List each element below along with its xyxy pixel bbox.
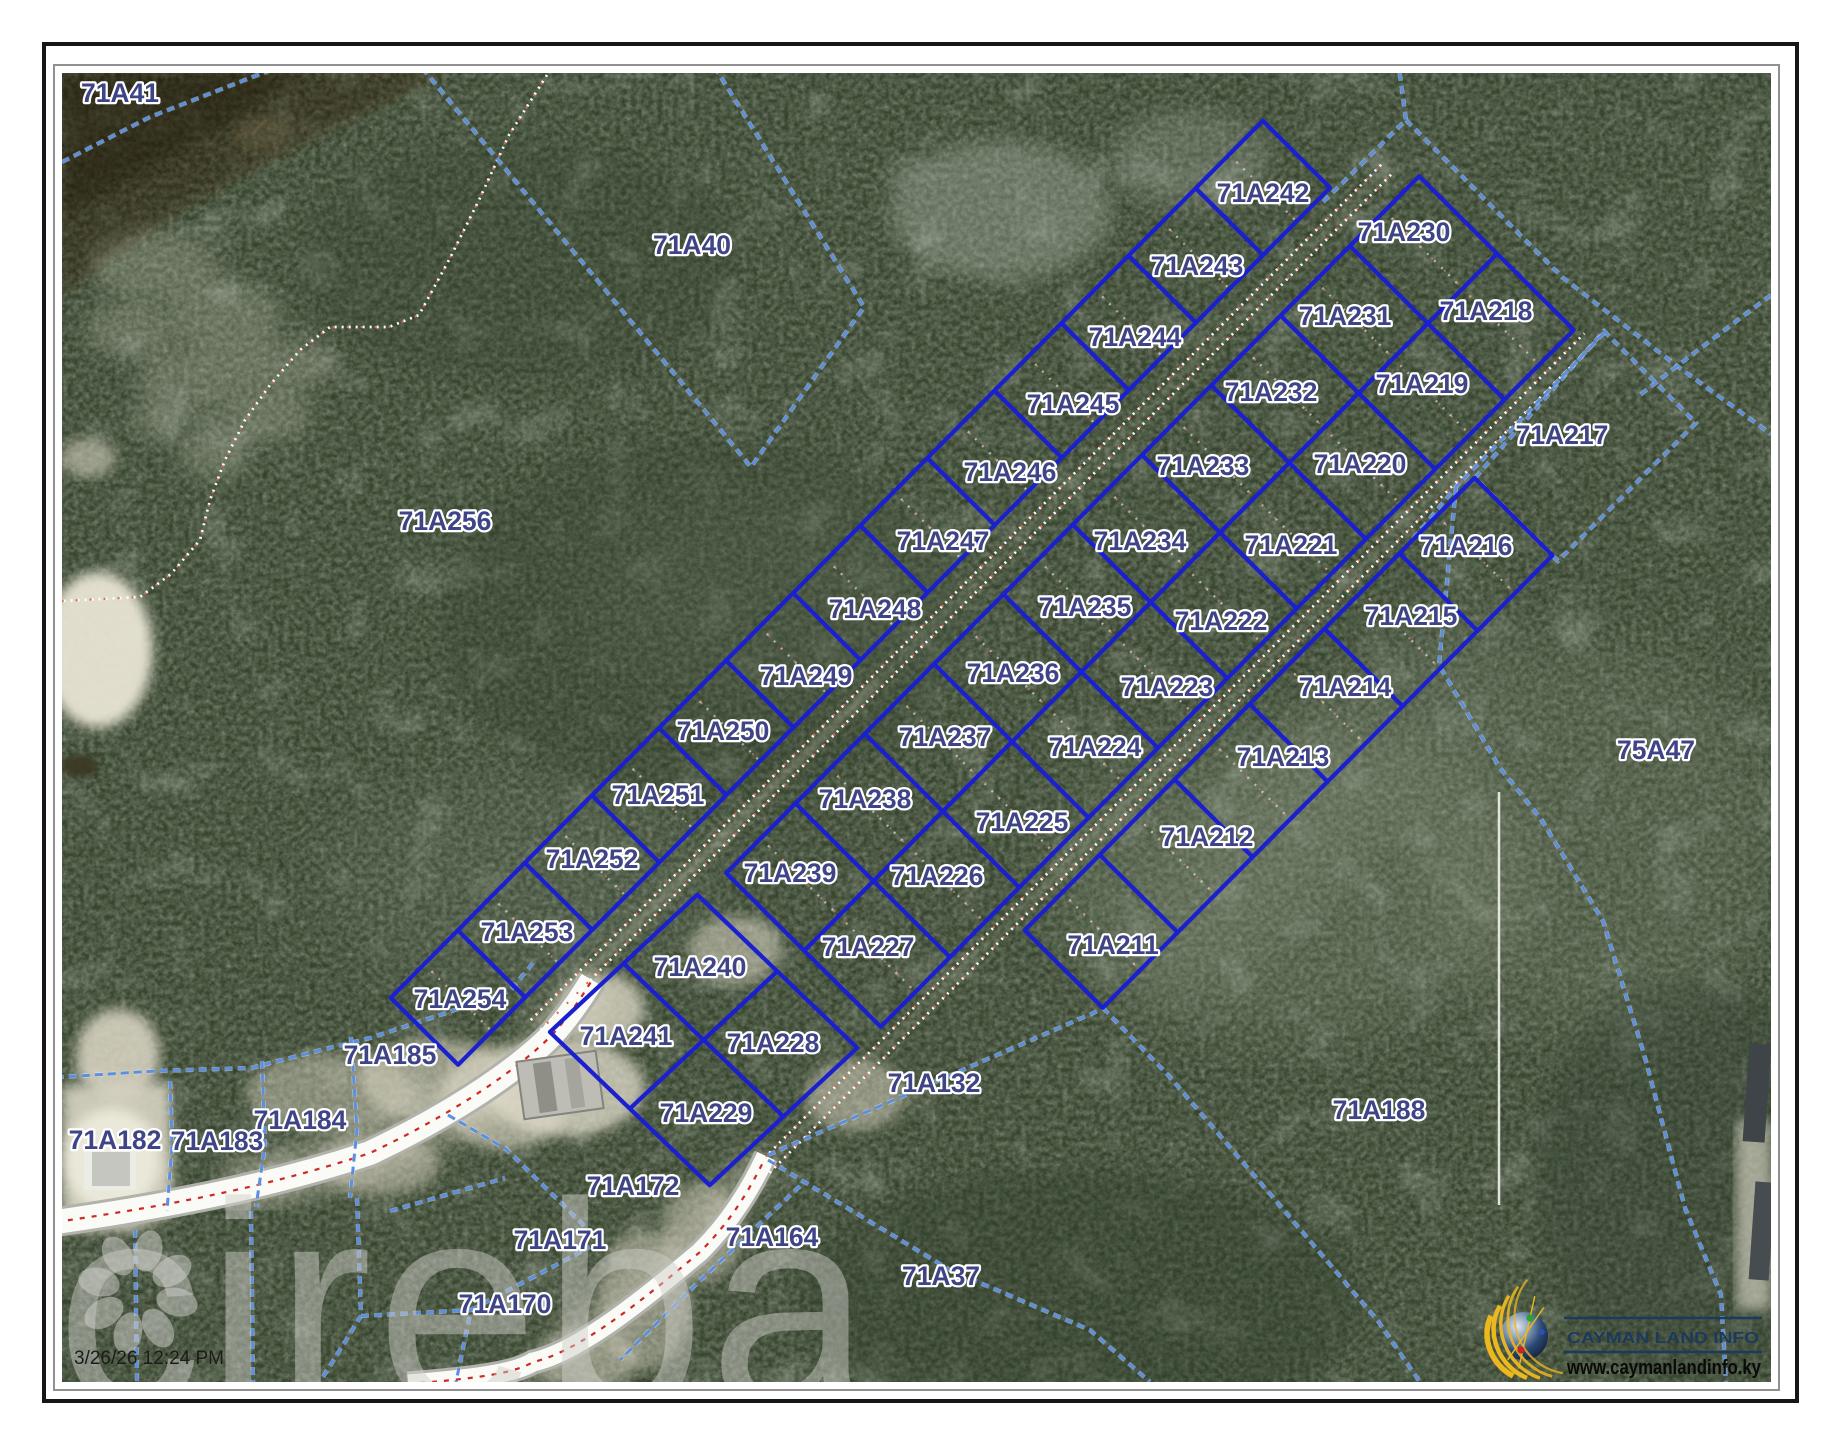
svg-text:71A249: 71A249: [760, 661, 853, 691]
svg-text:71A172: 71A172: [587, 1171, 680, 1201]
svg-text:71A232: 71A232: [1225, 377, 1318, 407]
svg-text:3/26/26 12:24 PM: 3/26/26 12:24 PM: [74, 1348, 224, 1369]
svg-text:75A47: 75A47: [1617, 735, 1695, 765]
svg-text:71A234: 71A234: [1094, 526, 1187, 556]
svg-text:71A188: 71A188: [1333, 1095, 1426, 1125]
svg-text:71A222: 71A222: [1175, 606, 1268, 636]
svg-text:71A224: 71A224: [1049, 732, 1142, 762]
svg-text:71A251: 71A251: [612, 780, 705, 810]
svg-text:71A239: 71A239: [744, 858, 837, 888]
svg-text:71A226: 71A226: [891, 861, 984, 891]
svg-text:71A41: 71A41: [81, 78, 159, 108]
svg-text:71A228: 71A228: [727, 1028, 820, 1058]
svg-text:71A225: 71A225: [976, 807, 1069, 837]
svg-text:71A170: 71A170: [459, 1289, 552, 1319]
svg-text:71A219: 71A219: [1376, 369, 1469, 399]
svg-text:71A214: 71A214: [1299, 672, 1392, 702]
svg-text:71A213: 71A213: [1237, 742, 1330, 772]
svg-text:71A233: 71A233: [1157, 451, 1250, 481]
svg-text:71A246: 71A246: [964, 457, 1057, 487]
svg-text:71A184: 71A184: [254, 1105, 347, 1135]
svg-text:71A229: 71A229: [660, 1098, 753, 1128]
svg-text:71A223: 71A223: [1121, 672, 1214, 702]
svg-text:71A185: 71A185: [344, 1040, 437, 1070]
svg-text:71A212: 71A212: [1161, 822, 1254, 852]
svg-text:71A211: 71A211: [1067, 930, 1158, 960]
svg-text:71A244: 71A244: [1089, 322, 1182, 352]
svg-text:71A221: 71A221: [1245, 530, 1338, 560]
svg-text:71A220: 71A220: [1314, 449, 1407, 479]
svg-text:71A240: 71A240: [654, 952, 747, 982]
svg-text:71A252: 71A252: [546, 844, 639, 874]
svg-text:71A40: 71A40: [653, 230, 731, 260]
svg-text:71A235: 71A235: [1039, 592, 1132, 622]
svg-text:71A256: 71A256: [399, 506, 492, 536]
svg-text:71A164: 71A164: [726, 1222, 819, 1252]
svg-text:71A253: 71A253: [481, 917, 574, 947]
svg-text:CAYMAN LAND INFO: CAYMAN LAND INFO: [1567, 1330, 1759, 1347]
svg-text:71A236: 71A236: [967, 658, 1060, 688]
svg-text:71A245: 71A245: [1027, 389, 1120, 419]
svg-text:71A248: 71A248: [829, 594, 922, 624]
svg-text:71A227: 71A227: [822, 932, 915, 962]
svg-text:71A183: 71A183: [171, 1126, 264, 1156]
svg-text:71A247: 71A247: [897, 526, 990, 556]
svg-text:71A182: 71A182: [69, 1125, 162, 1155]
svg-text:71A254: 71A254: [414, 984, 507, 1014]
svg-text:71A215: 71A215: [1365, 601, 1458, 631]
svg-text:71A230: 71A230: [1358, 217, 1451, 247]
svg-text:71A231: 71A231: [1299, 301, 1392, 331]
svg-text:71A216: 71A216: [1420, 531, 1513, 561]
svg-text:71A132: 71A132: [888, 1068, 981, 1098]
svg-text:71A171: 71A171: [514, 1225, 607, 1255]
svg-text:71A241: 71A241: [580, 1021, 673, 1051]
svg-text:71A37: 71A37: [902, 1261, 980, 1291]
svg-text:71A242: 71A242: [1217, 178, 1310, 208]
svg-text:www.caymanlandinfo.ky: www.caymanlandinfo.ky: [1566, 1357, 1762, 1379]
svg-text:cireba: cireba: [62, 1142, 875, 1382]
svg-text:71A218: 71A218: [1440, 296, 1533, 326]
svg-text:71A243: 71A243: [1151, 251, 1244, 281]
svg-text:71A250: 71A250: [677, 716, 770, 746]
svg-text:71A237: 71A237: [899, 722, 992, 752]
svg-text:71A238: 71A238: [819, 784, 912, 814]
svg-text:71A217: 71A217: [1516, 420, 1609, 450]
